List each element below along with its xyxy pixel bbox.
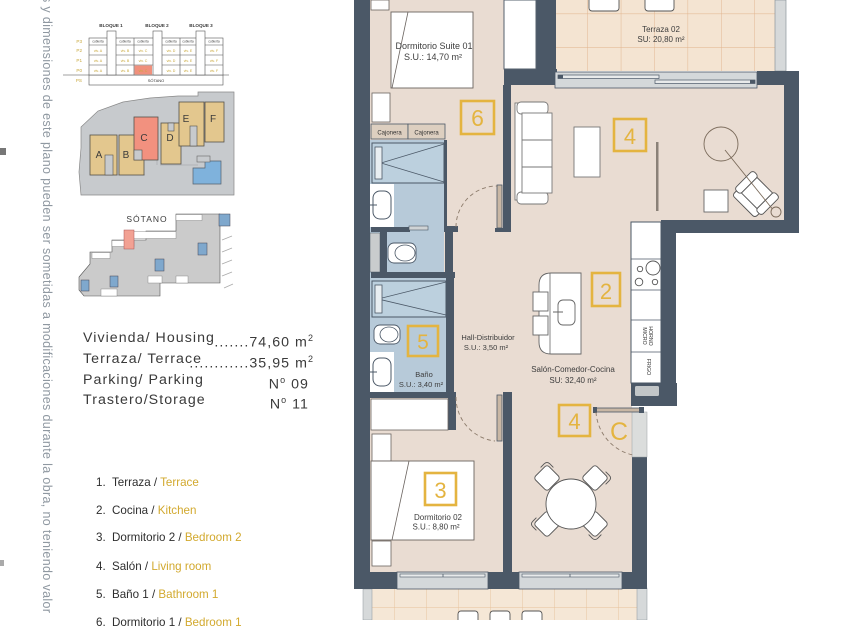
svg-text:viv. F: viv. F <box>210 59 219 63</box>
svg-text:P1: P1 <box>76 58 82 63</box>
svg-text:viv. B: viv. B <box>121 59 130 63</box>
svg-text:Salón-Comedor-Cocina: Salón-Comedor-Cocina <box>531 365 615 374</box>
svg-text:cubierta: cubierta <box>165 40 177 44</box>
svg-text:4: 4 <box>624 124 636 149</box>
svg-text:Dormitorio 02: Dormitorio 02 <box>414 513 463 522</box>
svg-text:Dormitorio Suite 01: Dormitorio Suite 01 <box>395 41 472 51</box>
svg-text:viv. E: viv. E <box>184 59 193 63</box>
svg-text:viv. A: viv. A <box>94 59 103 63</box>
svg-text:BLOQUE 3: BLOQUE 3 <box>189 23 213 28</box>
svg-text:viv. D: viv. D <box>167 59 176 63</box>
svg-text:F: F <box>210 114 216 125</box>
svg-text:BLOQUE 1: BLOQUE 1 <box>99 23 123 28</box>
svg-text:viv. E: viv. E <box>184 69 193 73</box>
svg-text:viv. B: viv. B <box>121 69 130 73</box>
svg-text:viv. D: viv. D <box>167 49 176 53</box>
svg-text:viv. C: viv. C <box>139 69 148 73</box>
svg-text:SU: 32,40 m²: SU: 32,40 m² <box>549 376 596 385</box>
svg-text:cubierta: cubierta <box>137 40 149 44</box>
svg-text:MICRO: MICRO <box>641 327 647 344</box>
svg-text:S.U.: 8,80 m²: S.U.: 8,80 m² <box>412 523 459 532</box>
svg-text:S.U.: 3,40 m²: S.U.: 3,40 m² <box>399 380 444 389</box>
svg-text:viv. F: viv. F <box>210 69 219 73</box>
svg-text:Hall-Distribuidor: Hall-Distribuidor <box>461 333 515 342</box>
svg-text:6: 6 <box>471 105 484 131</box>
svg-text:viv. C: viv. C <box>139 59 148 63</box>
svg-text:P3: P3 <box>76 39 82 44</box>
svg-text:C: C <box>610 418 628 446</box>
svg-text:Cajonera: Cajonera <box>377 131 402 137</box>
svg-text:viv. A: viv. A <box>94 49 103 53</box>
svg-text:E: E <box>183 114 190 125</box>
svg-text:SÓTANO: SÓTANO <box>126 214 167 224</box>
svg-text:D: D <box>166 133 173 144</box>
svg-text:S.U.: 14,70 m²: S.U.: 14,70 m² <box>404 52 462 62</box>
svg-text:SÓTANO: SÓTANO <box>148 78 165 83</box>
svg-text:A: A <box>96 150 103 161</box>
svg-text:Baño: Baño <box>415 370 433 379</box>
svg-text:BLOQUE 2: BLOQUE 2 <box>145 23 169 28</box>
svg-text:3: 3 <box>434 478 446 503</box>
svg-text:C: C <box>140 133 147 144</box>
svg-text:viv. F: viv. F <box>210 49 219 53</box>
svg-text:P2: P2 <box>76 48 82 53</box>
svg-text:Cajonera: Cajonera <box>414 131 439 137</box>
svg-text:viv. E: viv. E <box>184 49 193 53</box>
svg-text:cubierta: cubierta <box>119 40 131 44</box>
svg-text:viv. D: viv. D <box>167 69 176 73</box>
svg-text:B: B <box>123 150 130 161</box>
svg-text:5: 5 <box>417 331 429 354</box>
svg-text:cubierta: cubierta <box>208 40 220 44</box>
svg-text:cubierta: cubierta <box>92 40 104 44</box>
svg-text:Terraza 02: Terraza 02 <box>642 25 680 34</box>
svg-text:P0: P0 <box>76 68 82 73</box>
svg-text:SU: 20,80 m²: SU: 20,80 m² <box>637 35 684 44</box>
svg-text:viv. C: viv. C <box>139 49 148 53</box>
svg-text:PS: PS <box>76 78 82 83</box>
svg-text:2: 2 <box>600 279 612 304</box>
svg-text:viv. A: viv. A <box>94 69 103 73</box>
svg-text:S.U.: 3,50 m²: S.U.: 3,50 m² <box>464 343 509 352</box>
svg-text:4: 4 <box>568 409 580 434</box>
svg-text:viv. B: viv. B <box>121 49 130 53</box>
svg-text:FRIGO: FRIGO <box>645 359 651 375</box>
svg-text:cubierta: cubierta <box>182 40 194 44</box>
